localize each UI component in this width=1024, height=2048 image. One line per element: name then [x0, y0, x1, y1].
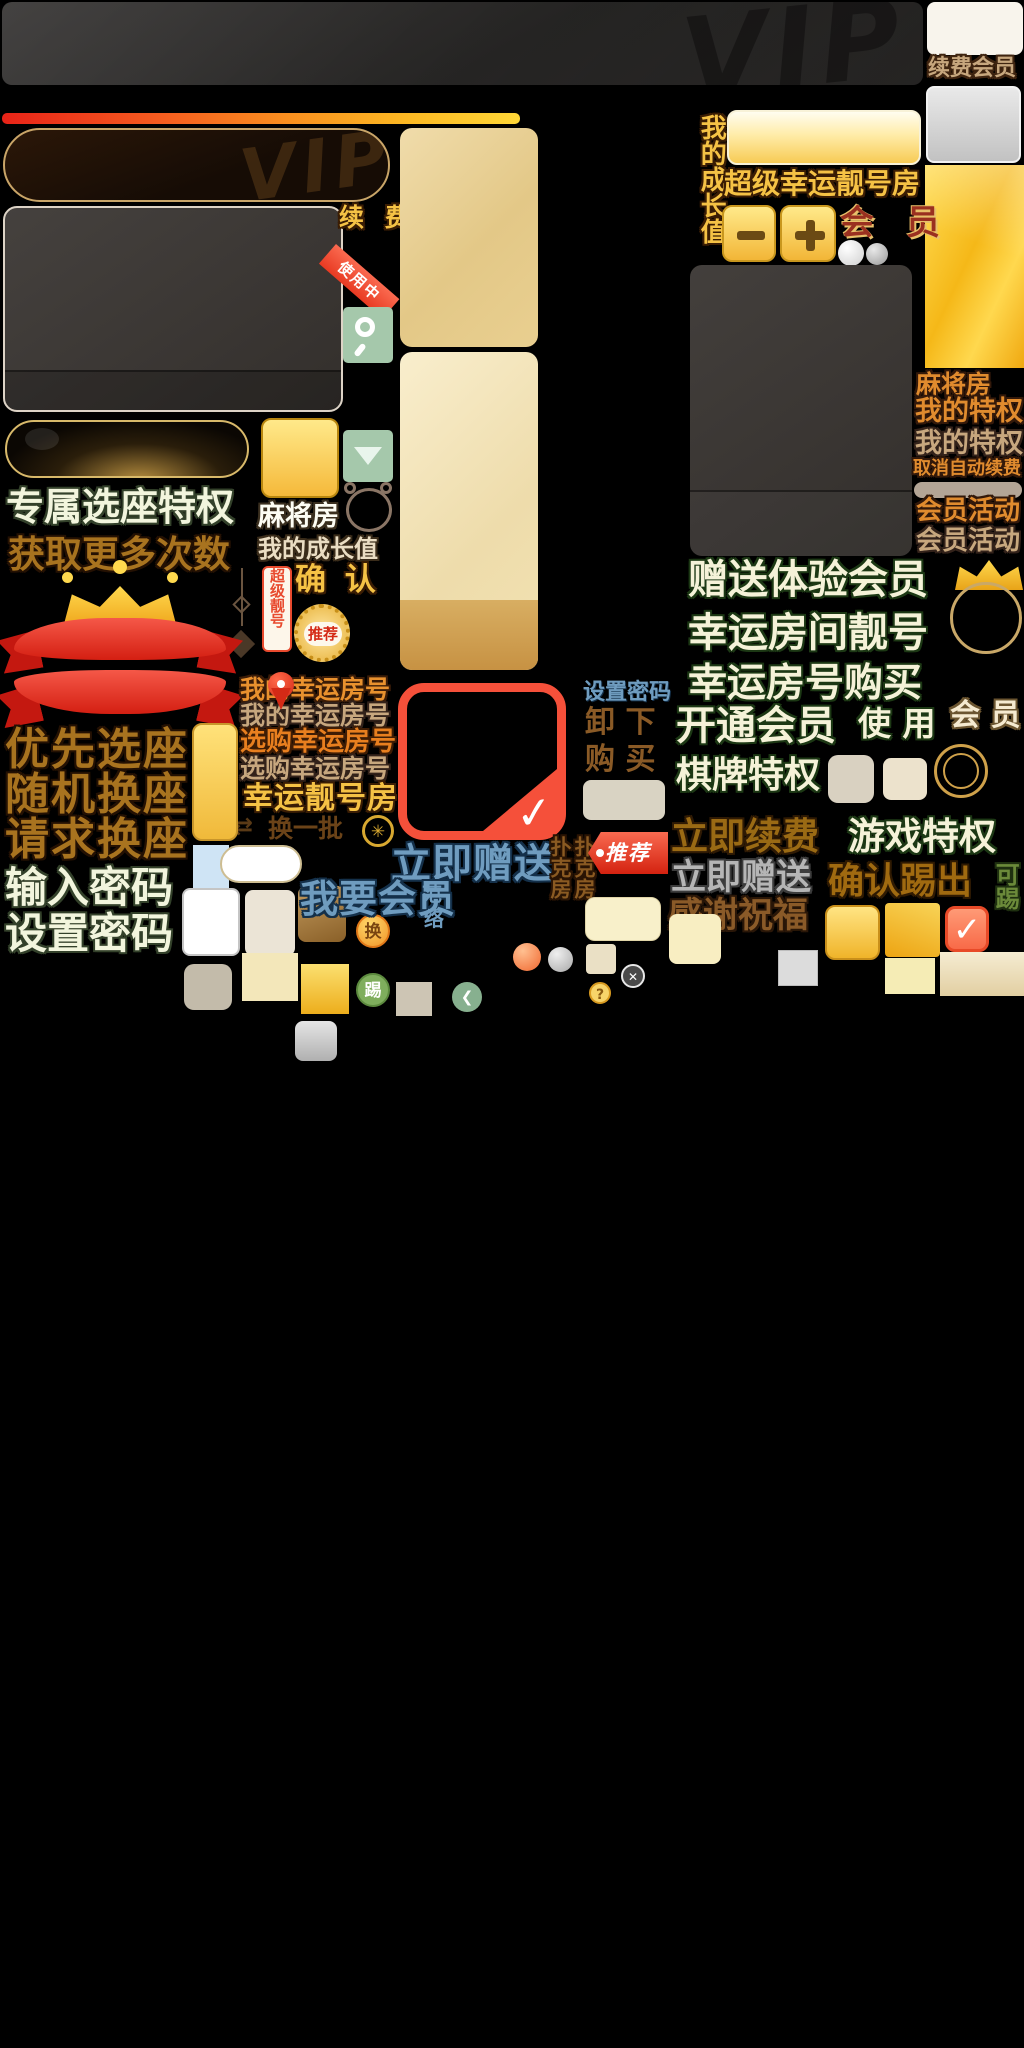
- use-spaced-label: 使 用: [858, 707, 936, 742]
- gray-ball: [866, 243, 888, 265]
- bear-ring-icon: [346, 488, 392, 532]
- member-activity-1: 会员活动: [916, 498, 1020, 525]
- silver-rect: [926, 86, 1021, 163]
- recommend-tag-label: 推荐: [605, 841, 651, 865]
- dark-card-left: [3, 206, 343, 412]
- pale-yellow-square-2: [885, 958, 935, 994]
- pin-dot: [277, 680, 285, 688]
- cancel-auto-renew-label: 取消自动续费: [913, 460, 1021, 479]
- minus-icon: [737, 231, 765, 240]
- lucky-number-buy-label: 幸运房号购买: [688, 664, 922, 705]
- lucky-nice-room-label: 幸运靓号房: [243, 783, 398, 815]
- facet-overlay: [925, 165, 1024, 368]
- chess-privilege-label: 棋牌特权: [676, 757, 820, 795]
- dark-card-right-seam: [690, 490, 912, 556]
- gold-panel-a: [400, 128, 538, 347]
- white-pill[interactable]: [220, 845, 302, 883]
- buy-lucky-room-1: 选购幸运房号: [240, 729, 396, 756]
- cream-button[interactable]: [585, 897, 661, 941]
- magnifier-button[interactable]: [343, 307, 393, 363]
- recommend-medal: 推荐: [294, 604, 350, 662]
- silver-square: [295, 1021, 337, 1061]
- kick-coin-button[interactable]: 踢: [356, 973, 390, 1007]
- magnifier-icon: [355, 317, 375, 337]
- cream-wide-rect: [940, 952, 1024, 996]
- back-circle-button[interactable]: ❮: [452, 982, 482, 1012]
- gray-square-b: [778, 950, 818, 986]
- vip-watermark-pill: VIP: [235, 128, 390, 202]
- black-sparkle-pill: [5, 420, 249, 478]
- gold-button-a[interactable]: [825, 905, 880, 960]
- magnifier-handle: [353, 343, 366, 358]
- recommend-tag: 推荐: [588, 832, 668, 874]
- chevron-down-icon: [354, 447, 382, 465]
- map-pin-icon: [268, 672, 294, 710]
- pill-sheen: [25, 428, 59, 450]
- renew-member-label: 续费会员: [928, 57, 1016, 80]
- renew-now-label: 立即续费: [671, 818, 819, 857]
- medal-center: 推荐: [304, 622, 342, 646]
- dark-card-right: [690, 265, 912, 556]
- my-lucky-room-2: 我的幸运房号: [240, 703, 390, 729]
- pale-yellow-square-3: [669, 914, 721, 964]
- set-password-label: 设置密码: [5, 912, 173, 956]
- gold-button-top[interactable]: [727, 110, 921, 165]
- dark-card-left-footer: [5, 370, 341, 410]
- cream-rect: [927, 2, 1023, 55]
- confirm-kick-label: 确认踢出: [828, 863, 972, 901]
- sprite-atlas-canvas: VIP 续费会员 我的成长值 超级幸运靓号房 会 员 VIP 续 费 使用中: [0, 0, 1024, 2048]
- medal-label: 推荐: [308, 625, 338, 643]
- red-ribbon-1-band: [14, 618, 226, 660]
- poker-room-vertical-1: 扑克房: [549, 836, 571, 899]
- tan-square-a: [828, 755, 874, 803]
- open-member-label: 开通会员: [676, 705, 836, 747]
- gold-inner-ring: [943, 753, 979, 789]
- exclusive-seat-label: 专属选座特权: [6, 488, 234, 528]
- brown-vip-pill: VIP: [3, 128, 390, 202]
- wheat-glyph: ✳: [371, 822, 385, 842]
- mahjong-room-right: 麻将房: [916, 372, 991, 398]
- crown-dot-mid: [113, 560, 127, 574]
- luo-char: 络: [424, 909, 444, 930]
- tan-small-square: [396, 982, 432, 1016]
- fan-char: 范: [422, 884, 442, 905]
- gold-panel-b-band: [400, 600, 538, 670]
- super-lucky-room-label: 超级幸运靓号房: [724, 169, 920, 198]
- unload-label: 卸 下: [585, 707, 655, 739]
- plus-button[interactable]: [780, 205, 836, 262]
- close-button[interactable]: ✕: [621, 964, 645, 988]
- gold-facet-panel: [925, 165, 1024, 368]
- purchase-label: 购 买: [585, 744, 655, 776]
- kickable-label: 可踢: [992, 862, 1017, 910]
- white-ball: [838, 240, 864, 266]
- progress-gradient-bar: [2, 113, 520, 124]
- close-icon: ✕: [628, 970, 638, 984]
- avatar-ring: [950, 582, 1022, 654]
- tag-hole: [596, 849, 604, 857]
- gold-square-mid[interactable]: [261, 418, 339, 498]
- priority-seat-label: 优先选座: [5, 727, 189, 773]
- buy-lucky-room-2: 选购幸运房号: [240, 756, 390, 782]
- white-card: [182, 888, 240, 956]
- kick-coin-label: 踢: [365, 981, 382, 1001]
- member-red-label: 会 员: [840, 206, 950, 242]
- plus-icon-v: [806, 220, 815, 251]
- super-nice-tag: 超级靓号: [262, 566, 292, 652]
- cream-square-b: [883, 758, 927, 800]
- pale-gold-square: [242, 953, 298, 1001]
- give-now-gray-label: 立即赠送: [671, 860, 811, 897]
- cream-square-4: [586, 944, 616, 974]
- enter-password-label: 输入密码: [5, 866, 173, 910]
- question-coin[interactable]: ?: [589, 982, 611, 1004]
- swap-coin-label: 换: [365, 922, 382, 942]
- member-activity-2: 会员活动: [916, 528, 1020, 555]
- top-banner: VIP: [2, 2, 923, 85]
- gift-trial-member-label: 赠送体验会员: [688, 559, 928, 601]
- lucky-room-number-label: 幸运房间靓号: [688, 612, 928, 654]
- member-spaced-2-label: 会 员: [950, 700, 1020, 732]
- change-batch-label[interactable]: 换一批: [268, 816, 343, 842]
- checkbox-check-icon: ✓: [953, 910, 982, 950]
- super-nice-tag-label: 超级靓号: [264, 568, 290, 628]
- my-privilege-2: 我的特权: [915, 430, 1023, 458]
- gold-button-b[interactable]: [885, 903, 940, 957]
- checkbox-checked[interactable]: ✓: [945, 906, 989, 952]
- set-password-small-label: 设置密码: [583, 681, 671, 704]
- my-growth-mid: 我的成长值: [258, 537, 378, 562]
- confirm-label: 确 认: [295, 564, 380, 597]
- tan-rect-mid: [583, 780, 665, 820]
- request-swap-label: 请求换座: [5, 817, 189, 863]
- my-growth-vertical: 我的成长值: [697, 114, 724, 244]
- gold-panel-b: [400, 352, 538, 670]
- crown-dot-right: [167, 572, 178, 583]
- wheat-ring-icon: ✳: [362, 815, 394, 847]
- random-swap-label: 随机换座: [5, 772, 189, 818]
- gold-tall-button[interactable]: [192, 723, 238, 841]
- red-ribbon-2-band: [14, 670, 226, 714]
- orange-ball: [513, 943, 541, 971]
- crown-dot-left: [62, 572, 73, 583]
- my-privilege-1: 我的特权: [915, 398, 1023, 426]
- poker-room-vertical-2: 扑克房: [573, 836, 595, 899]
- my-lucky-room-1: 我的幸运房号: [240, 677, 390, 703]
- back-chevron-icon: ❮: [461, 988, 474, 1006]
- cream-square: [245, 890, 295, 956]
- gold-gradient-square: [301, 964, 349, 1014]
- check-icon: ✓: [514, 789, 556, 839]
- question-coin-label: ?: [596, 987, 604, 1003]
- selection-frame[interactable]: ✓: [398, 683, 566, 840]
- dropdown-button[interactable]: [343, 430, 393, 482]
- minus-button[interactable]: [722, 205, 776, 262]
- bear-ear-right: [380, 482, 392, 494]
- gray-ball-2: [548, 947, 573, 972]
- bear-ear-left: [344, 482, 356, 494]
- chain-diamond-hollow: [232, 595, 250, 613]
- vip-watermark: VIP: [676, 2, 913, 85]
- gold-double-ring: [934, 744, 988, 798]
- tan-rounded-square: [184, 964, 232, 1010]
- mahjong-room-mid: 麻将房: [258, 503, 339, 531]
- game-privilege-label: 游戏特权: [848, 818, 996, 857]
